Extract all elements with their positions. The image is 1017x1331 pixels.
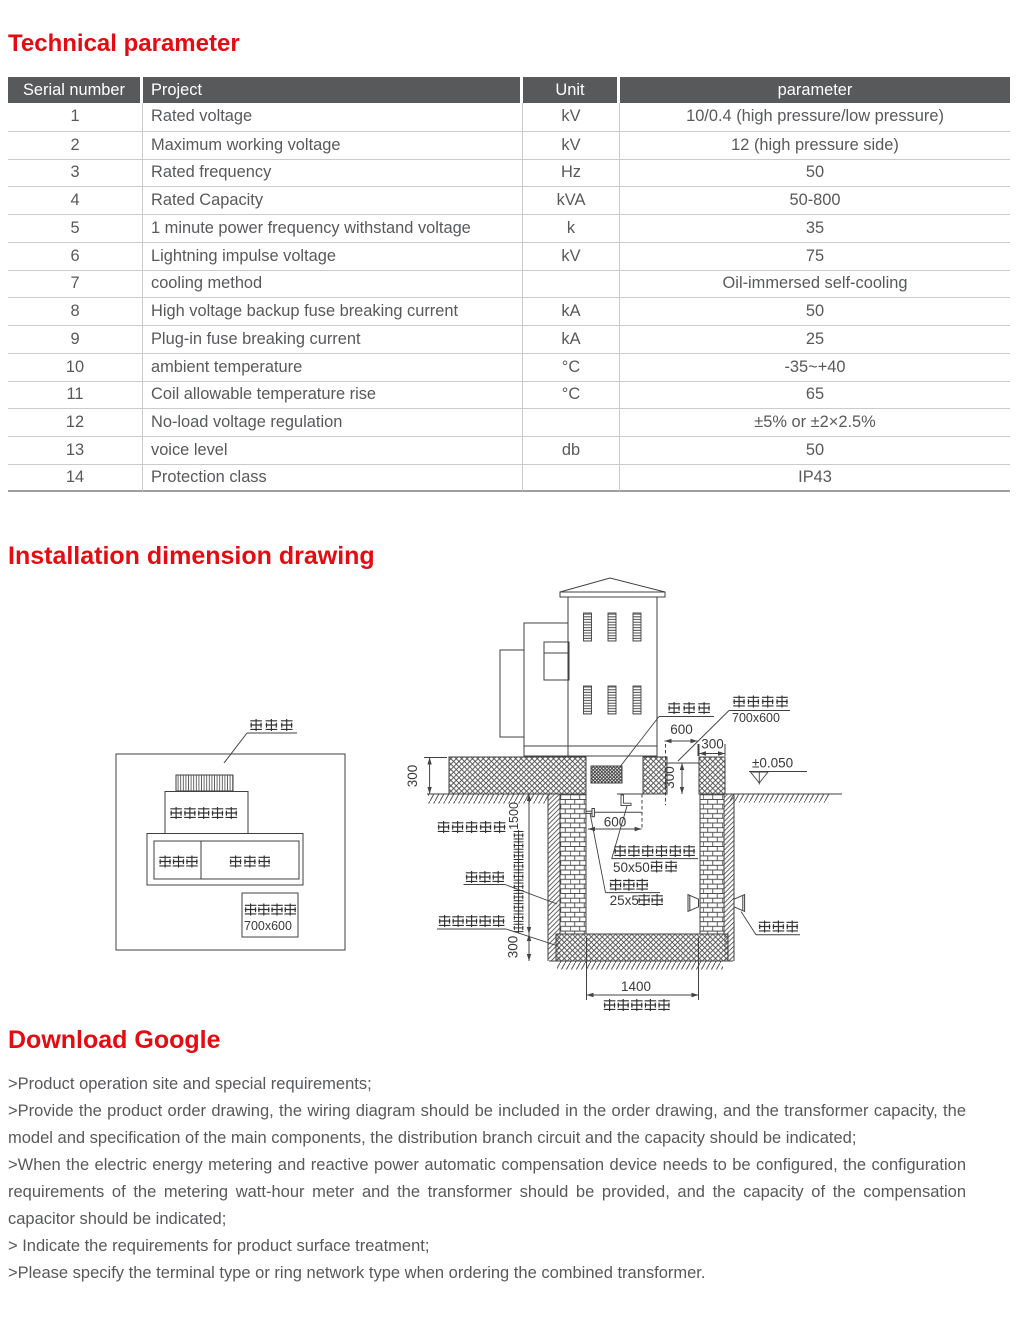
svg-text:50x50: 50x50	[613, 860, 650, 875]
svg-text:600: 600	[604, 815, 627, 830]
svg-text:1500: 1500	[507, 802, 521, 830]
svg-text:300: 300	[701, 737, 724, 752]
svg-text:1400: 1400	[621, 979, 651, 994]
svg-text:700x600: 700x600	[244, 919, 292, 933]
svg-text:700x600: 700x600	[732, 711, 780, 725]
svg-text:300: 300	[506, 936, 521, 959]
svg-text:600: 600	[670, 722, 693, 737]
svg-text:±0.050: ±0.050	[752, 756, 793, 771]
svg-text:25x5: 25x5	[610, 893, 639, 908]
svg-text:300: 300	[662, 766, 677, 789]
svg-text:300: 300	[405, 765, 420, 788]
